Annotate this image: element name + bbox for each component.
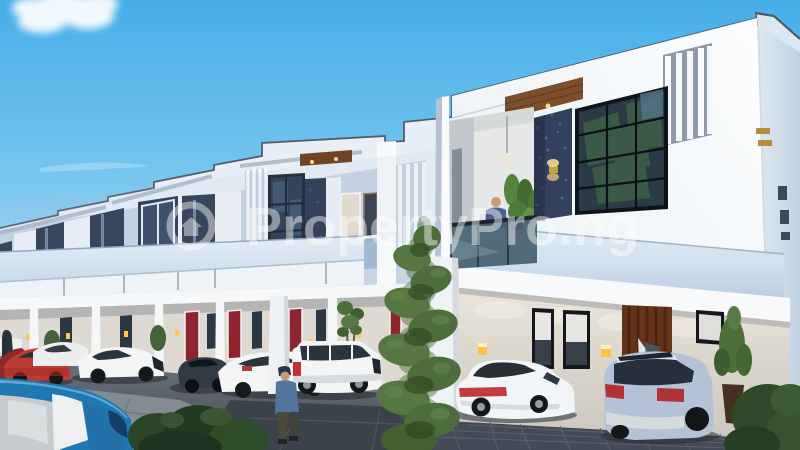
svg-text:PropertyPro.ng: PropertyPro.ng	[246, 197, 639, 257]
